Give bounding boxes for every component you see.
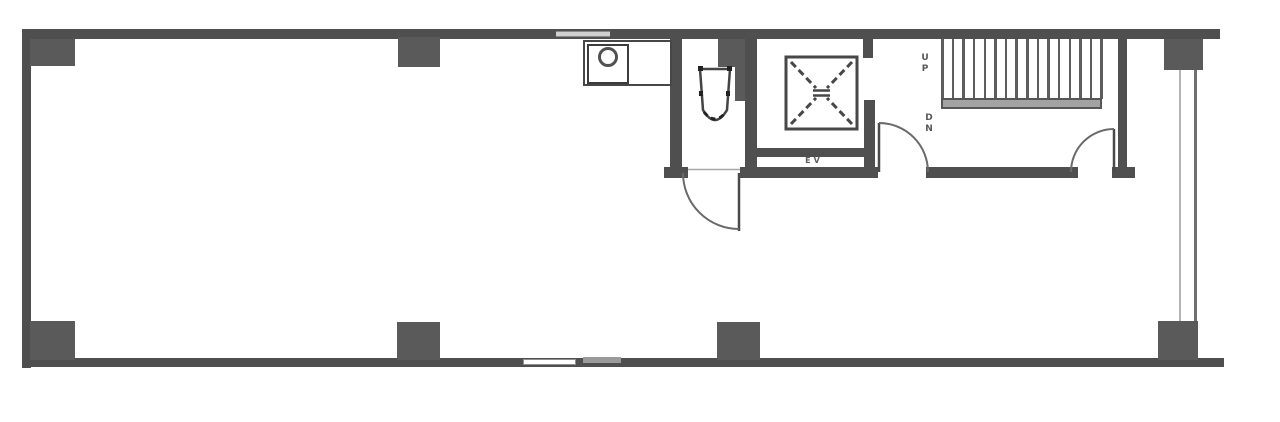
wall-stair-right bbox=[1118, 39, 1127, 178]
entry-bottom-gray-panel bbox=[583, 357, 621, 363]
stair-tread-line bbox=[994, 39, 997, 99]
column-bottom-left bbox=[30, 321, 75, 360]
toilet-outline bbox=[700, 69, 730, 120]
wall-service-bottom-c bbox=[926, 167, 1078, 178]
elevator-label: EV bbox=[797, 155, 831, 166]
wall-service-bottom-b bbox=[740, 167, 878, 178]
column-bottom-middle-2 bbox=[717, 322, 760, 360]
wall-service-bottom-a bbox=[664, 167, 688, 178]
stair-tread-line bbox=[1079, 39, 1082, 99]
stair-tread-line bbox=[973, 39, 976, 99]
window-top-above-sink bbox=[556, 31, 610, 37]
column-top-middle bbox=[398, 37, 440, 67]
stair-tread-line bbox=[1069, 39, 1072, 99]
stair-landing-bar bbox=[941, 98, 1102, 109]
stair-tread-line bbox=[1047, 39, 1050, 99]
wall-elevator-right-upper bbox=[863, 39, 873, 58]
stairs-up-label: UP bbox=[920, 53, 929, 75]
column-bottom-middle-1 bbox=[397, 322, 440, 360]
elevator-cab bbox=[786, 57, 857, 129]
toilet-corner-marks bbox=[698, 66, 732, 96]
window-right-inner-line bbox=[1179, 70, 1181, 322]
stair-tread-line bbox=[984, 39, 987, 99]
stair-door-arc bbox=[1071, 129, 1114, 172]
stair-treads bbox=[941, 39, 1103, 99]
stairs-down-label: DN bbox=[924, 113, 933, 135]
column-top-right bbox=[1164, 39, 1203, 70]
stair-tread-line bbox=[1090, 39, 1093, 99]
stair-tread-line bbox=[952, 39, 955, 99]
toilet-bowl-dashes bbox=[704, 112, 726, 119]
toilet-door-arc bbox=[683, 173, 739, 229]
stair-tread-line bbox=[1026, 39, 1029, 99]
column-bottom-right bbox=[1158, 321, 1198, 360]
wall-left bbox=[22, 29, 31, 368]
stair-tread-line bbox=[1100, 39, 1103, 99]
entry-bottom-white-panel bbox=[523, 359, 576, 365]
stair-tread-line bbox=[941, 39, 944, 99]
column-top-left bbox=[30, 39, 75, 66]
stair-tread-line bbox=[1037, 39, 1040, 99]
wall-elevator-left bbox=[745, 39, 757, 178]
stair-tread-line bbox=[1015, 39, 1018, 99]
stair-tread-line bbox=[1005, 39, 1008, 99]
elevator-center-marks bbox=[813, 91, 830, 96]
lobby-door-arc bbox=[879, 123, 928, 172]
elevator-x-icon bbox=[791, 62, 852, 124]
window-right-outer-line bbox=[1194, 70, 1197, 322]
floor-plan: UP DN EV bbox=[0, 0, 1280, 422]
sink-faucet-icon bbox=[598, 47, 618, 67]
wall-top bbox=[22, 29, 1220, 39]
stair-tread-line bbox=[1058, 39, 1061, 99]
stair-tread-line bbox=[962, 39, 965, 99]
wall-bottom bbox=[22, 358, 1224, 367]
